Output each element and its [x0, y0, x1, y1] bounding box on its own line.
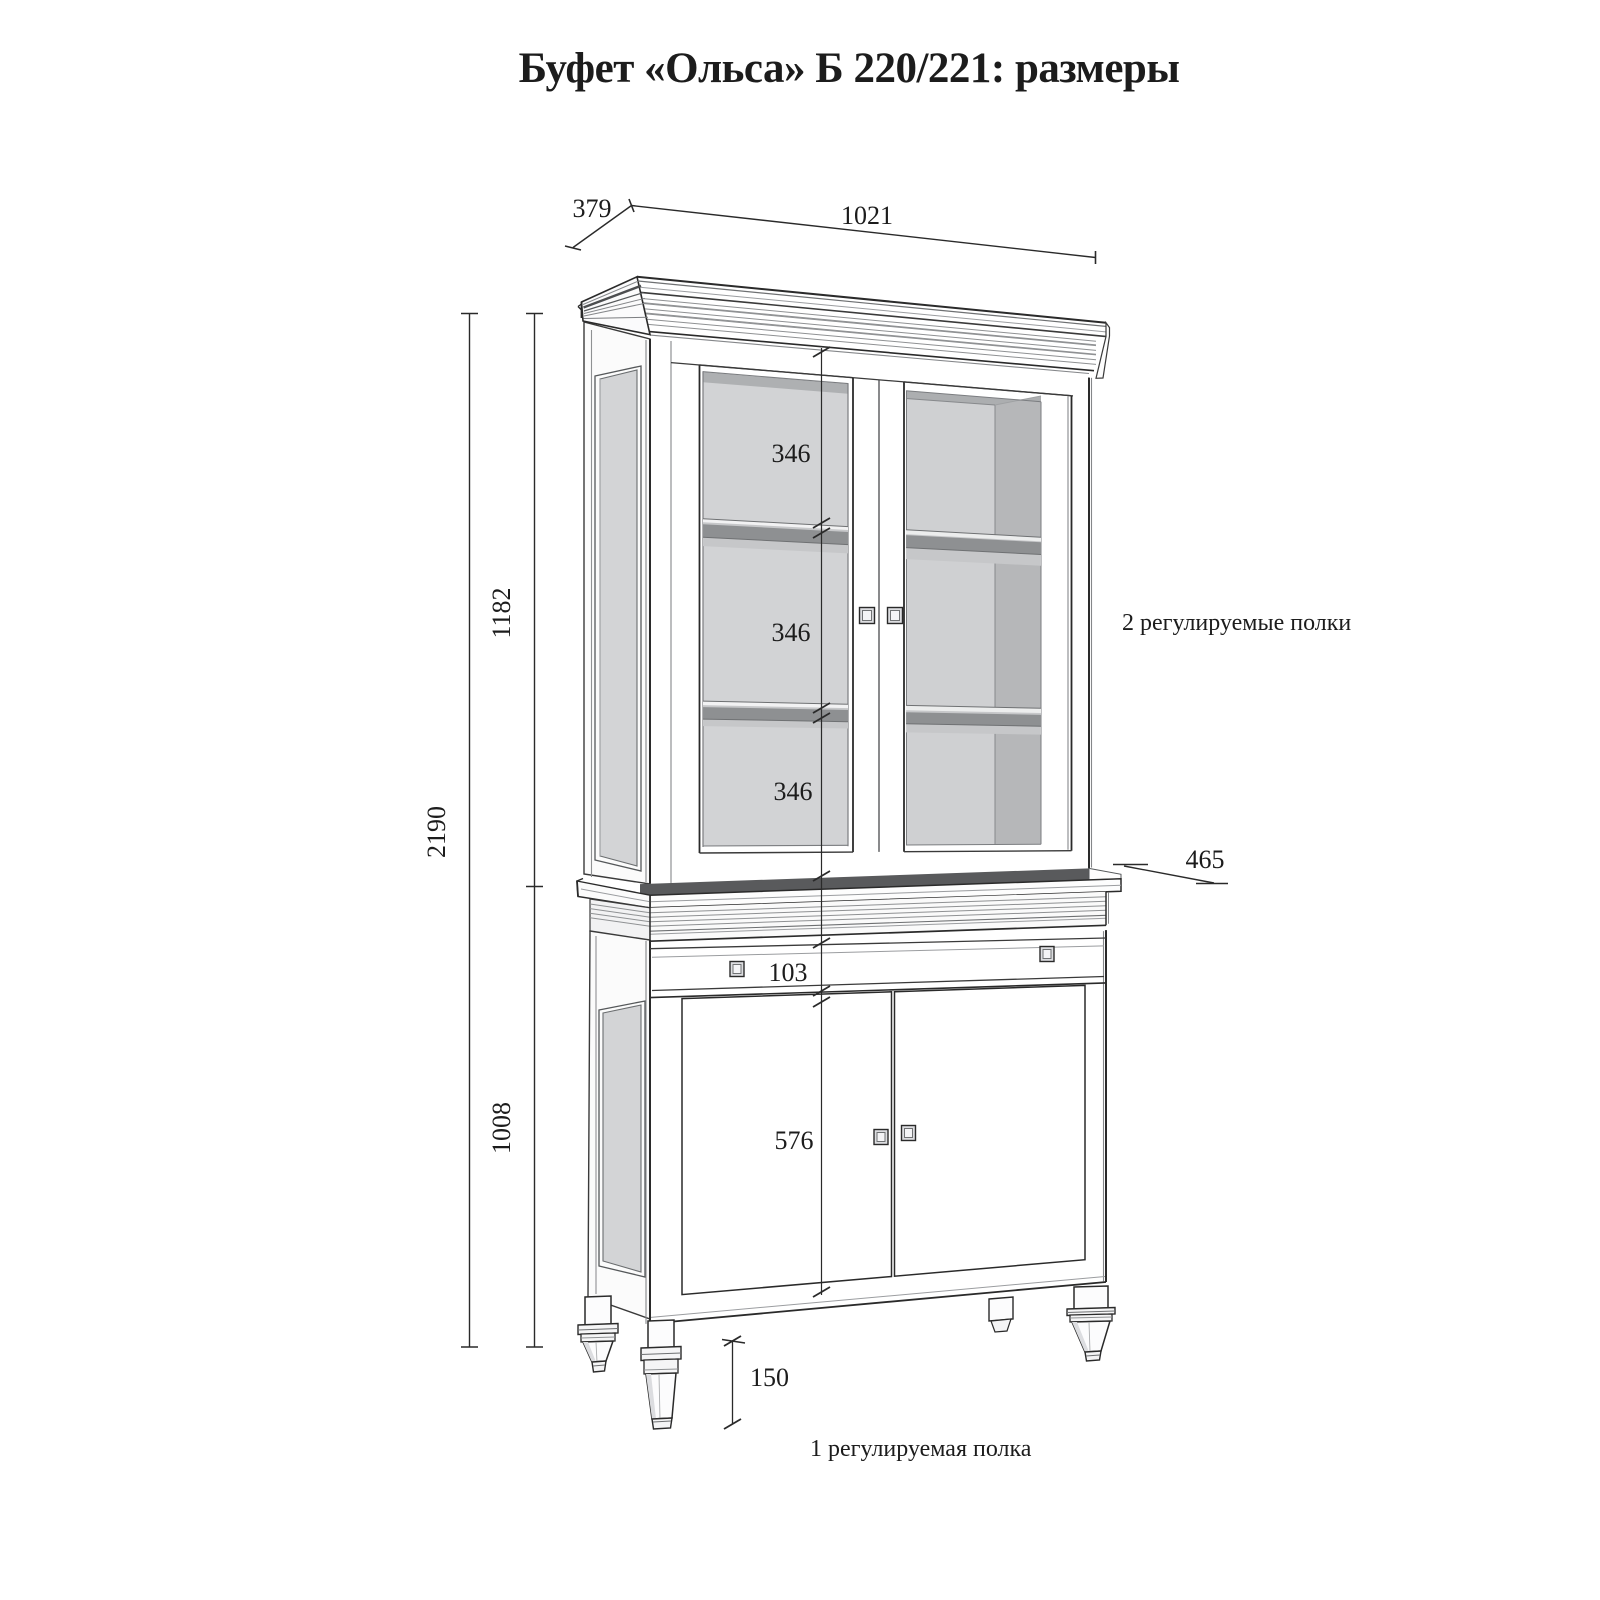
svg-text:1021: 1021 — [841, 201, 893, 230]
svg-text:576: 576 — [775, 1126, 814, 1155]
svg-text:346: 346 — [772, 439, 811, 468]
svg-text:Буфет «Ольса» Б 220/221: разме: Буфет «Ольса» Б 220/221: размеры — [519, 45, 1180, 92]
svg-text:2 регулируемые полки: 2 регулируемые полки — [1122, 610, 1351, 636]
svg-text:346: 346 — [772, 618, 811, 647]
svg-text:150: 150 — [750, 1363, 789, 1392]
svg-text:103: 103 — [769, 958, 808, 987]
svg-text:1008: 1008 — [487, 1102, 516, 1154]
svg-text:2190: 2190 — [422, 806, 451, 858]
svg-text:346: 346 — [774, 777, 813, 806]
svg-text:1182: 1182 — [487, 587, 516, 638]
svg-text:1 регулируемая полка: 1 регулируемая полка — [810, 1436, 1032, 1462]
svg-text:465: 465 — [1186, 845, 1225, 874]
svg-text:379: 379 — [573, 194, 612, 223]
